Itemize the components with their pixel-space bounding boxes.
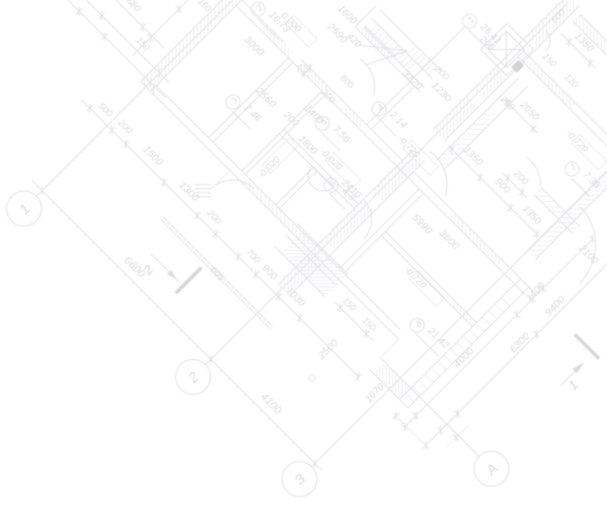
svg-text:A: A xyxy=(482,460,502,480)
svg-text:1: 1 xyxy=(16,200,34,218)
svg-text:2.14: 2.14 xyxy=(387,109,410,132)
svg-text:9400: 9400 xyxy=(543,294,568,319)
svg-text:120: 120 xyxy=(562,72,580,90)
svg-text:7: 7 xyxy=(568,162,579,173)
svg-text:800: 800 xyxy=(338,72,356,90)
svg-text:605: 605 xyxy=(207,265,226,284)
svg-text:1400: 1400 xyxy=(524,280,548,304)
svg-text:2050: 2050 xyxy=(517,99,542,124)
svg-text:1350: 1350 xyxy=(520,204,544,228)
svg-text:600: 600 xyxy=(549,7,567,25)
svg-text:4100: 4100 xyxy=(258,391,284,417)
svg-text:7.56: 7.56 xyxy=(330,124,352,146)
svg-text:3000: 3000 xyxy=(241,33,266,58)
svg-text:200: 200 xyxy=(431,63,451,83)
svg-text:1: 1 xyxy=(565,377,581,393)
svg-text:1350: 1350 xyxy=(572,31,596,55)
svg-text:200: 200 xyxy=(281,109,301,129)
svg-text:1350: 1350 xyxy=(461,145,485,169)
svg-text:2: 2 xyxy=(184,368,203,387)
svg-text:2100: 2100 xyxy=(575,242,600,267)
svg-text:1300: 1300 xyxy=(176,179,201,204)
svg-text:2500: 2500 xyxy=(315,337,341,363)
svg-text:700: 700 xyxy=(243,247,262,266)
svg-text:1500: 1500 xyxy=(140,143,165,168)
svg-text:7.38: 7.38 xyxy=(580,169,602,191)
svg-text:900: 900 xyxy=(259,263,279,283)
svg-text:1230: 1230 xyxy=(429,79,454,104)
svg-text:21.42: 21.42 xyxy=(425,325,451,351)
svg-text:200: 200 xyxy=(115,117,135,137)
svg-text:1070: 1070 xyxy=(363,381,387,405)
svg-text:7.46: 7.46 xyxy=(241,103,263,125)
svg-text:3: 3 xyxy=(291,470,309,488)
svg-text:5990: 5990 xyxy=(410,212,435,237)
svg-text:2680: 2680 xyxy=(119,0,143,15)
svg-text:1600: 1600 xyxy=(335,3,359,27)
svg-text:150: 150 xyxy=(541,51,559,69)
svg-text:3600: 3600 xyxy=(437,227,462,252)
svg-text:2590: 2590 xyxy=(324,20,350,46)
svg-text:4000: 4000 xyxy=(451,345,476,370)
svg-text:200: 200 xyxy=(204,207,224,227)
svg-text:200: 200 xyxy=(319,87,337,105)
svg-text:2560: 2560 xyxy=(253,84,279,110)
